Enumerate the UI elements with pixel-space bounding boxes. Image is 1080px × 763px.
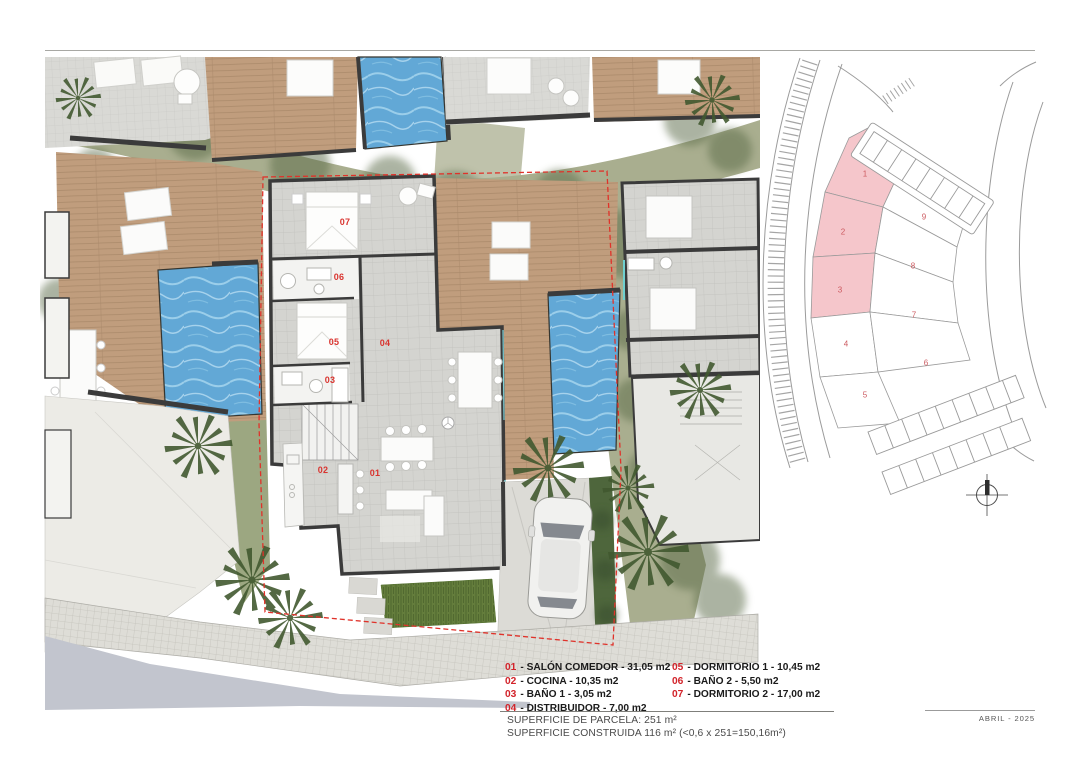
neighbour-villa-right	[622, 179, 760, 545]
legend-num: 03	[505, 689, 516, 700]
legend-item: 05- DORMITORIO 1 - 10,45 m2	[672, 661, 820, 675]
legend-num: 02	[505, 676, 516, 687]
legend-column-2: 05- DORMITORIO 1 - 10,45 m2 06- BAÑO 2 -…	[672, 661, 820, 702]
plot-label-6: 6	[924, 359, 928, 368]
room-label-02: 02	[318, 465, 329, 475]
site-plan-key	[750, 50, 1070, 520]
plot-label-9: 9	[922, 213, 926, 222]
plan-sheet: 07 06 05 04 03 02 01	[0, 0, 1080, 763]
legend-text: - BAÑO 1 - 3,05 m2	[520, 689, 611, 700]
legend-num: 06	[672, 676, 683, 687]
legend-num: 07	[672, 689, 683, 700]
room-label-04: 04	[380, 338, 391, 348]
legend-text: - DORMITORIO 1 - 10,45 m2	[687, 662, 820, 673]
plot-label-5: 5	[863, 391, 867, 400]
room-label-05: 05	[329, 337, 340, 347]
plot-3	[811, 253, 875, 318]
plot-label-1: 1	[863, 170, 867, 179]
area-summary: SUPERFICIE DE PARCELA: 251 m² SUPERFICIE…	[507, 714, 786, 740]
legend-item: 02- COCINA - 10,35 m2	[505, 675, 670, 689]
site-buildings-bottom	[868, 375, 1031, 494]
car-top-view	[523, 496, 597, 620]
plot-label-2: 2	[841, 228, 845, 237]
plot-label-4: 4	[844, 340, 848, 349]
legend-item: 04- DISTRIBUIDOR - 7,00 m2	[505, 702, 670, 716]
legend-item: 01- SALÓN COMEDOR - 31,05 m2	[505, 661, 670, 675]
floor-plan-drawing	[40, 52, 760, 712]
room-label-06: 06	[334, 272, 345, 282]
legend-text: - BAÑO 2 - 5,50 m2	[687, 676, 778, 687]
room-label-07: 07	[340, 217, 351, 227]
neighbour-deck-top-right	[592, 57, 760, 122]
legend-num: 01	[505, 662, 516, 673]
legend-num: 05	[672, 662, 683, 673]
grass-strip	[381, 579, 496, 628]
legend-item: 06- BAÑO 2 - 5,50 m2	[672, 675, 820, 689]
neighbour-deck-top	[205, 57, 358, 162]
legend-text: - SALÓN COMEDOR - 31,05 m2	[520, 662, 670, 673]
room-label-01: 01	[370, 468, 381, 478]
date-rule	[925, 710, 1035, 711]
legend-text: - COCINA - 10,35 m2	[520, 676, 618, 687]
plot-label-7: 7	[912, 311, 916, 320]
neighbour-pool-top	[358, 57, 449, 149]
plot-5	[820, 372, 900, 428]
north-compass	[966, 474, 1008, 516]
sheet-date: ABRIL - 2025	[925, 714, 1035, 723]
plot-label-8: 8	[911, 262, 915, 271]
neighbour-pool-left	[158, 262, 262, 420]
neighbour-patio-top-center	[443, 57, 590, 125]
legend-item: 07- DORMITORIO 2 - 17,00 m2	[672, 688, 820, 702]
legend-column-1: 01- SALÓN COMEDOR - 31,05 m2 02- COCINA …	[505, 661, 670, 715]
parcel-area-text: SUPERFICIE DE PARCELA: 251 m²	[507, 714, 786, 727]
legend-item: 03- BAÑO 1 - 3,05 m2	[505, 688, 670, 702]
main-pool	[548, 290, 620, 454]
plot-label-3: 3	[838, 286, 842, 295]
room-label-03: 03	[325, 375, 336, 385]
legend-text: - DORMITORIO 2 - 17,00 m2	[687, 689, 820, 700]
legend-separator	[500, 711, 834, 712]
built-area-text: SUPERFICIE CONSTRUIDA 116 m² (<0,6 x 251…	[507, 727, 786, 740]
